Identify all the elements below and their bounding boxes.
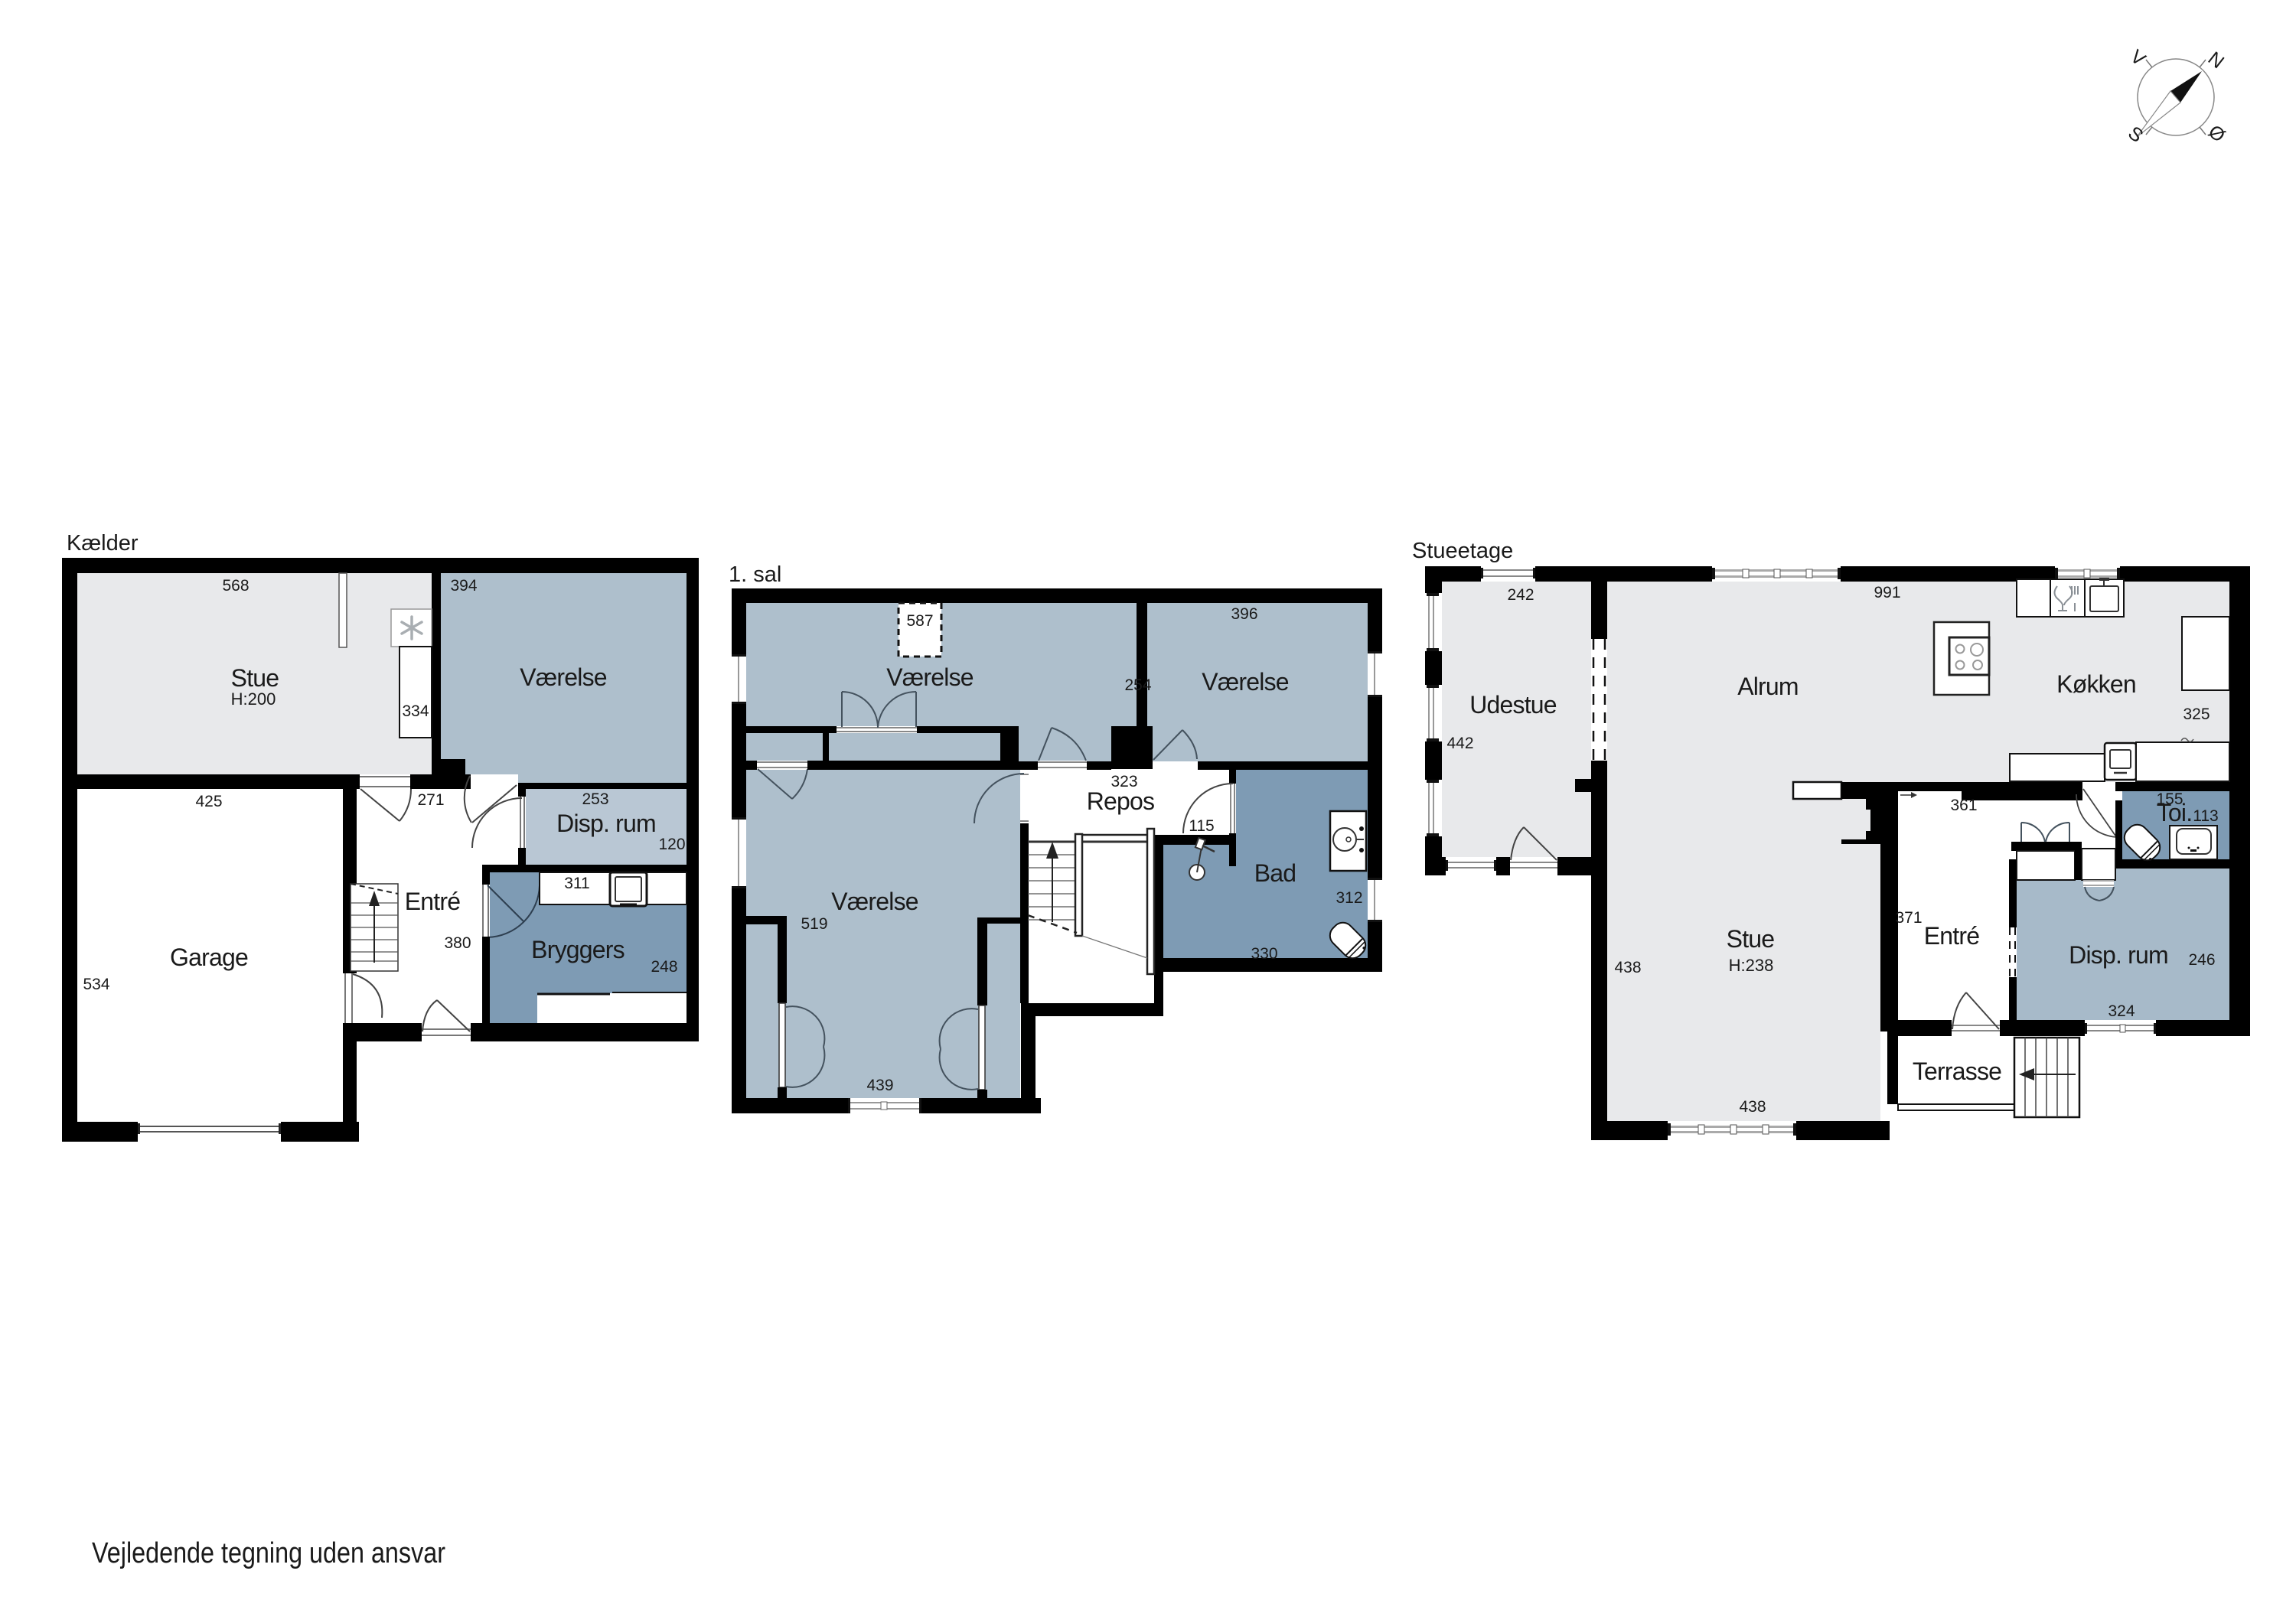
svg-text:242: 242 [1507,586,1534,604]
svg-text:Garage: Garage [170,943,248,971]
svg-text:H:200: H:200 [231,689,276,709]
svg-text:438: 438 [1739,1098,1766,1116]
svg-text:246: 246 [2188,951,2215,969]
svg-text:Toi.: Toi. [2157,799,2193,826]
svg-text:Alrum: Alrum [1737,673,1799,700]
svg-text:Stueetage: Stueetage [1412,539,1513,563]
svg-text:380: 380 [444,934,471,952]
svg-text:396: 396 [1231,605,1257,623]
svg-text:311: 311 [564,875,589,892]
svg-text:Værelse: Værelse [886,663,974,691]
svg-text:Bad: Bad [1254,859,1296,887]
svg-text:325: 325 [2183,706,2210,723]
svg-text:330: 330 [1251,945,1277,963]
svg-text:Køkken: Køkken [2056,670,2136,698]
svg-text:Disp. rum: Disp. rum [2069,941,2168,969]
svg-text:587: 587 [906,612,933,630]
svg-text:519: 519 [801,915,827,933]
svg-text:394: 394 [450,577,477,595]
svg-text:Vejledende tegning uden ansvar: Vejledende tegning uden ansvar [92,1537,445,1569]
svg-text:312: 312 [1336,889,1362,907]
svg-text:Entré: Entré [1924,922,1980,950]
svg-text:Værelse: Værelse [831,888,918,915]
svg-text:371: 371 [1895,909,1922,927]
svg-text:Stue: Stue [231,664,279,692]
svg-text:1. sal: 1. sal [729,562,781,587]
svg-text:Disp. rum: Disp. rum [556,810,656,837]
svg-text:H:238: H:238 [1729,956,1774,975]
svg-text:Repos: Repos [1087,787,1155,815]
svg-text:425: 425 [195,793,222,810]
svg-text:113: 113 [2193,807,2218,825]
svg-text:534: 534 [83,976,109,993]
svg-text:361: 361 [1950,797,1977,814]
svg-text:324: 324 [2108,1002,2135,1020]
svg-text:Entré: Entré [405,888,461,915]
svg-text:334: 334 [402,702,429,720]
svg-text:248: 248 [651,958,677,976]
svg-text:439: 439 [866,1077,893,1094]
svg-text:253: 253 [582,790,608,808]
svg-text:438: 438 [1614,959,1641,976]
svg-text:120: 120 [658,836,685,853]
svg-text:Stue: Stue [1727,925,1775,953]
svg-text:568: 568 [222,577,249,595]
svg-text:271: 271 [417,791,444,809]
svg-text:991: 991 [1874,584,1900,601]
svg-text:254: 254 [1124,676,1151,694]
svg-text:Værelse: Værelse [520,663,607,691]
svg-text:442: 442 [1446,735,1473,752]
svg-text:Udestue: Udestue [1469,691,1557,719]
svg-text:Terrasse: Terrasse [1913,1058,2001,1085]
svg-text:115: 115 [1189,817,1214,835]
svg-text:Bryggers: Bryggers [531,936,625,963]
svg-text:Kælder: Kælder [67,531,139,556]
svg-text:Værelse: Værelse [1202,668,1289,696]
